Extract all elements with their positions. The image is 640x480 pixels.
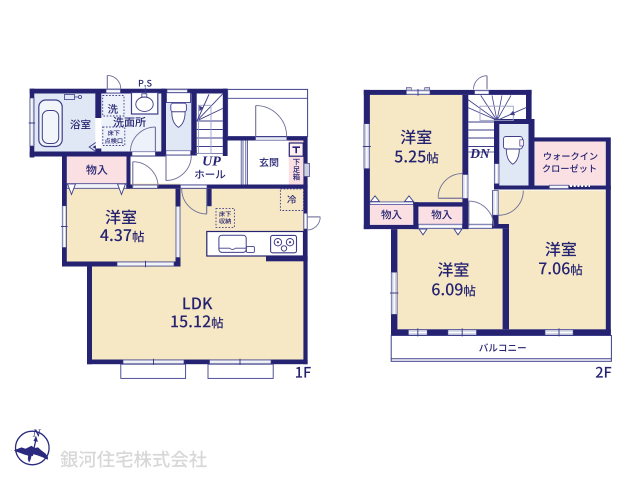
- svg-text:UP: UP: [202, 155, 221, 170]
- svg-text:DN: DN: [469, 146, 491, 161]
- svg-text:N: N: [32, 427, 42, 439]
